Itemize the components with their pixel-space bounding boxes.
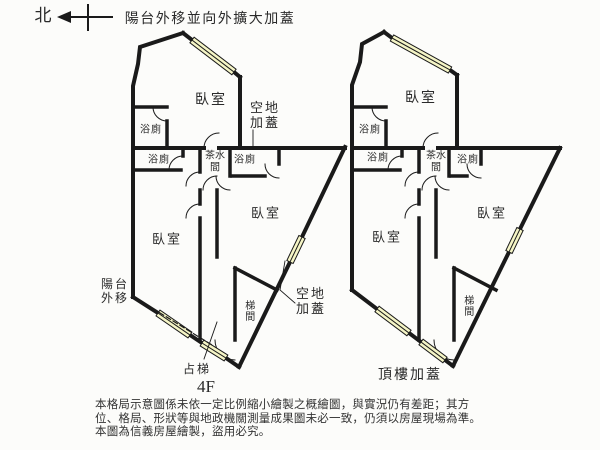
- room-label-bedroom-top-left: 臥室: [195, 91, 227, 107]
- north-label: 北: [35, 6, 52, 26]
- disclaimer-line3: 本圖為信義房屋繪製，盜用必究。: [95, 426, 565, 440]
- balcony-line2: 外移: [101, 292, 129, 306]
- room-label-bedroom-br-right: 臥室: [477, 207, 507, 222]
- floorplan-page: 北 陽台外移並向外擴大加蓋 臥室 浴廁 浴廁 茶水 間 浴廁 空地 加蓋 臥室 …: [0, 0, 600, 450]
- room-label-bath2-left: 浴廁: [148, 154, 170, 166]
- room-label-bedroom-bl-right: 臥室: [372, 231, 402, 246]
- open-top-left-line2: 加蓋: [250, 116, 280, 131]
- room-label-tea-left: 茶水 間: [205, 151, 225, 174]
- open-top-left-line1: 空地: [250, 101, 280, 116]
- floor-label-4f: 4F: [197, 377, 215, 397]
- open-bot-left-line1: 空地: [296, 287, 326, 302]
- tea-right-line2: 間: [426, 162, 446, 174]
- balcony-line1: 陽台: [101, 278, 129, 292]
- label-rooftop-addition: 頂樓加蓋: [378, 366, 442, 382]
- label-steal-stairs: 占梯: [183, 363, 211, 377]
- disclaimer-line2: 位、格局、形狀等與地政機關測量成果圖未必一致，仍須以房屋現場為準。: [95, 413, 565, 427]
- open-bot-left-line2: 加蓋: [296, 302, 326, 317]
- room-label-bath1-left: 浴廁: [140, 124, 162, 136]
- room-label-bath3-right: 浴廁: [457, 154, 479, 166]
- north-arrow-icon: [57, 11, 71, 23]
- tea-left-line2: 間: [205, 162, 225, 174]
- drawing-title: 陽台外移並向外擴大加蓋: [125, 10, 296, 26]
- room-label-stairwell-right: 梯間: [461, 295, 473, 317]
- room-label-tea-right: 茶水 間: [426, 151, 446, 174]
- room-label-bath1-right: 浴廁: [359, 124, 381, 136]
- tea-left-line1: 茶水: [205, 151, 225, 163]
- label-open-area-bottom-left: 空地 加蓋: [296, 287, 326, 317]
- label-balcony-moved-left: 陽台 外移: [101, 278, 129, 306]
- room-label-stairwell-left: 梯間: [242, 300, 254, 322]
- label-open-area-top-left: 空地 加蓋: [250, 101, 280, 131]
- room-label-bedroom-bl-left: 臥室: [152, 233, 182, 248]
- disclaimer-line1: 本格局示意圖係未依一定比例縮小繪製之概繪圖，與實況仍有差距；其方: [95, 399, 565, 413]
- room-label-bath3-left: 浴廁: [234, 154, 256, 166]
- disclaimer-text: 本格局示意圖係未依一定比例縮小繪製之概繪圖，與實況仍有差距；其方 位、格局、形狀…: [95, 399, 565, 440]
- tea-right-line1: 茶水: [426, 151, 446, 163]
- floorplan-drawing: [0, 0, 600, 450]
- room-label-bedroom-br-left: 臥室: [251, 207, 281, 222]
- room-label-bath2-right: 浴廁: [367, 152, 389, 164]
- room-label-bedroom-top-right: 臥室: [405, 89, 437, 105]
